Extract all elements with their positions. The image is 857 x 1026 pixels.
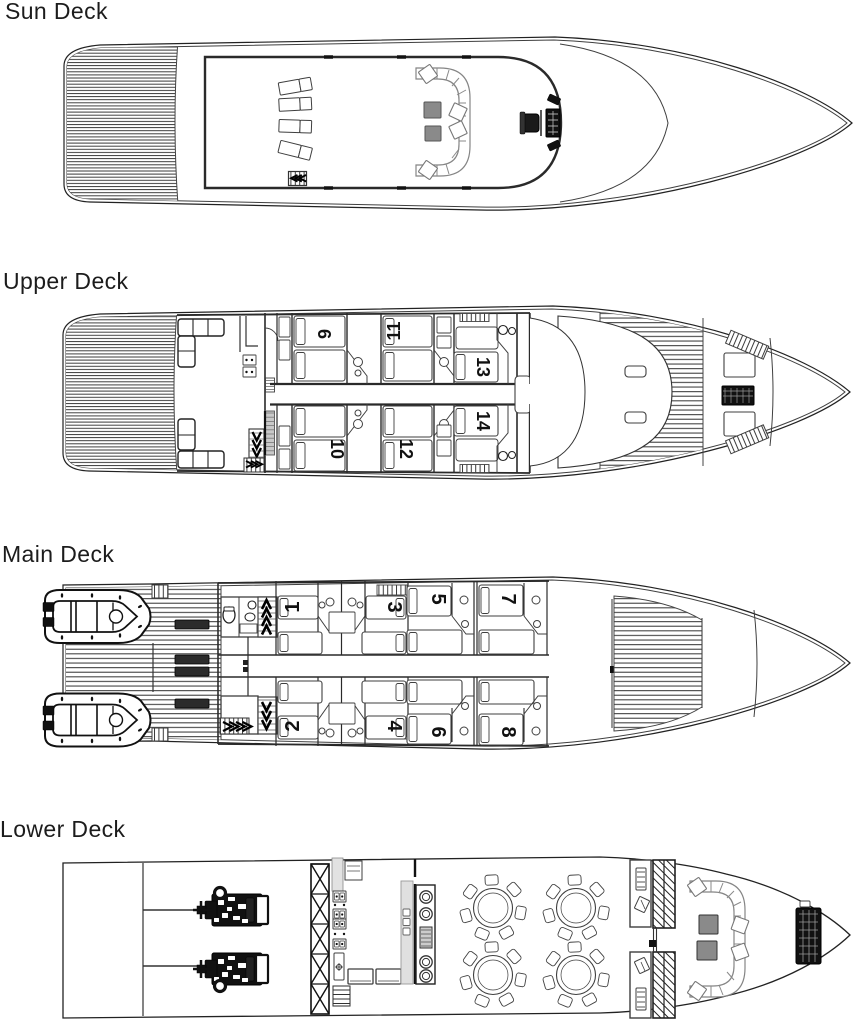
svg-text:6: 6	[427, 726, 449, 737]
svg-text:Sun Deck: Sun Deck	[5, 0, 108, 24]
svg-text:2: 2	[282, 720, 304, 731]
svg-text:Upper Deck: Upper Deck	[3, 268, 129, 294]
svg-text:13: 13	[473, 357, 493, 377]
svg-text:9: 9	[315, 329, 335, 339]
svg-text:14: 14	[473, 411, 493, 431]
svg-text:Main Deck: Main Deck	[2, 541, 114, 567]
svg-text:12: 12	[396, 439, 416, 459]
svg-text:7: 7	[497, 593, 519, 604]
svg-text:10: 10	[327, 439, 347, 459]
svg-text:4: 4	[383, 720, 405, 732]
svg-text:Lower Deck: Lower Deck	[0, 816, 126, 842]
svg-text:5: 5	[427, 593, 449, 604]
svg-text:1: 1	[282, 601, 304, 612]
svg-text:11: 11	[384, 321, 404, 340]
svg-text:3: 3	[383, 601, 405, 612]
svg-text:8: 8	[497, 726, 519, 737]
